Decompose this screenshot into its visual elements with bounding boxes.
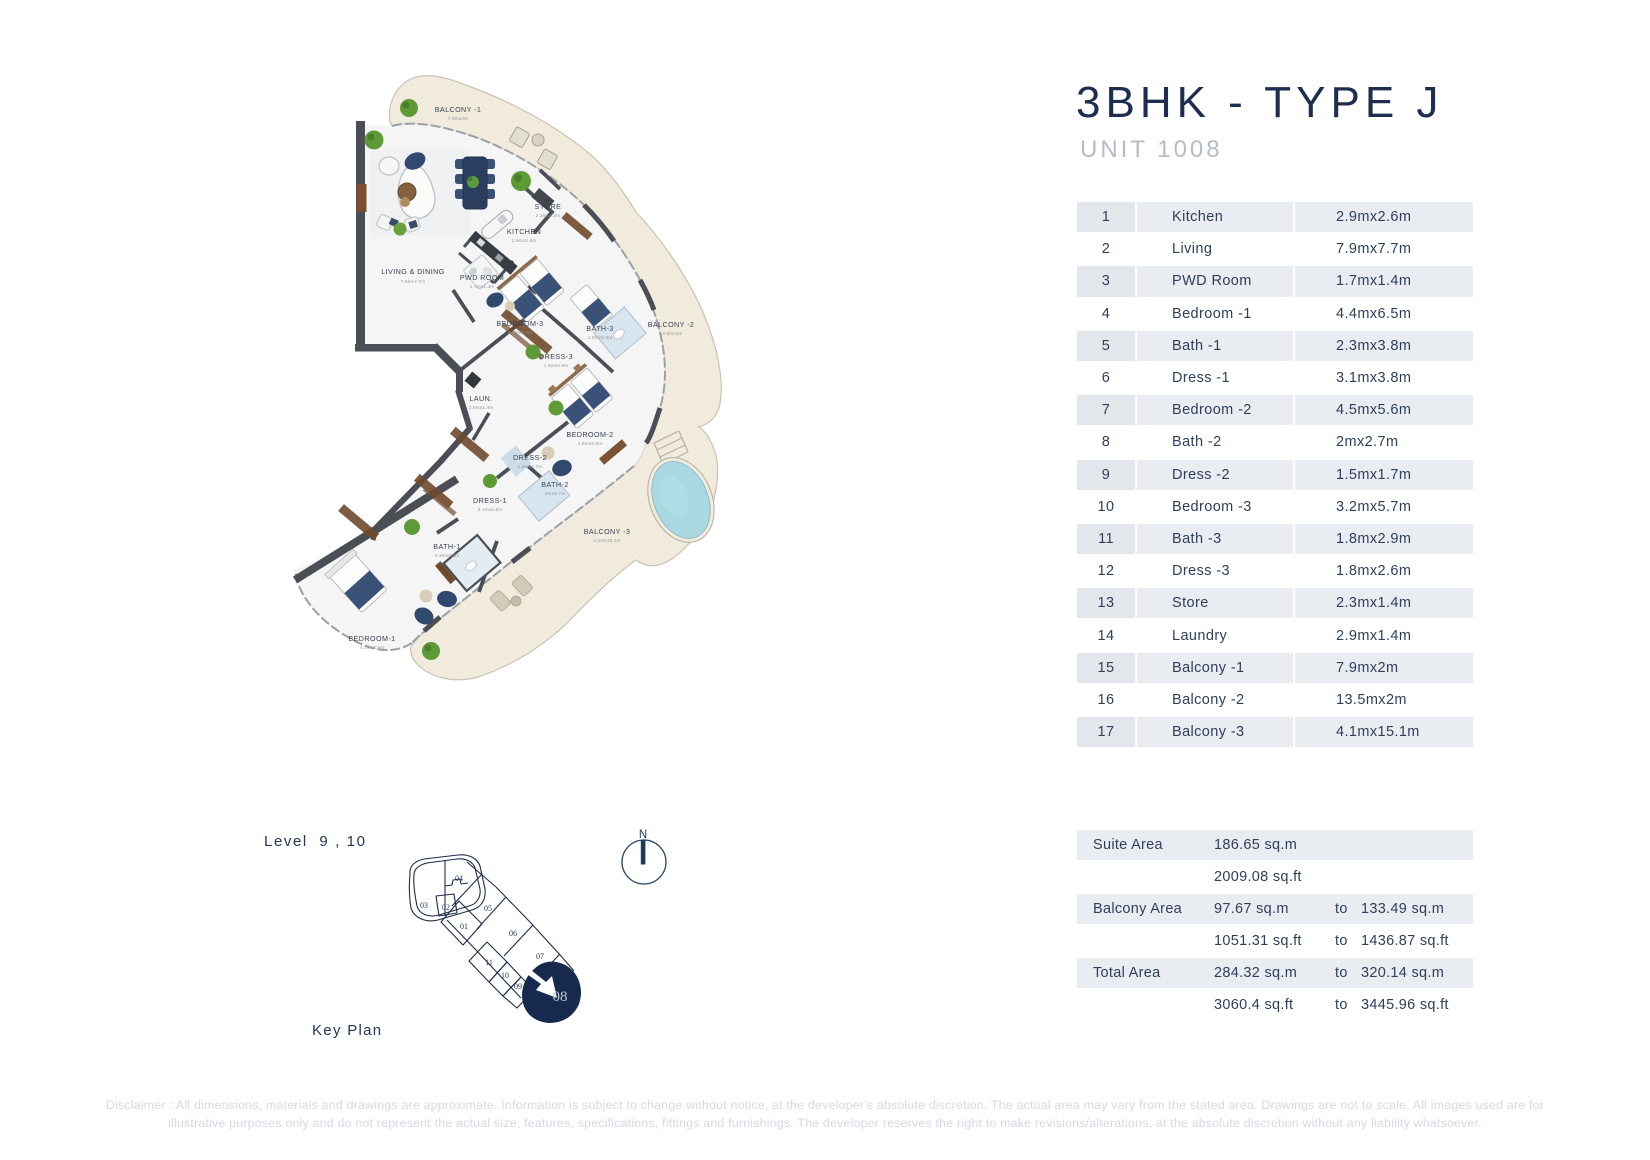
svg-text:4.5mx5.6m: 4.5mx5.6m xyxy=(578,441,603,446)
svg-text:N: N xyxy=(639,829,647,841)
svg-text:BATH-2: BATH-2 xyxy=(541,480,568,489)
svg-text:BALCONY -2: BALCONY -2 xyxy=(648,320,695,329)
svg-text:7.9mx7.7m: 7.9mx7.7m xyxy=(401,279,426,284)
svg-text:DRESS-2: DRESS-2 xyxy=(513,453,547,462)
svg-text:07: 07 xyxy=(536,952,544,961)
svg-text:06: 06 xyxy=(509,929,517,938)
svg-text:4.4mx6.5m: 4.4mx6.5m xyxy=(360,645,385,650)
svg-text:2mx2.7m: 2mx2.7m xyxy=(545,491,565,496)
svg-text:10: 10 xyxy=(501,971,509,980)
svg-text:08: 08 xyxy=(553,989,568,1005)
svg-text:1.7mx1.4m: 1.7mx1.4m xyxy=(470,284,495,289)
svg-text:1.8mx2.9m: 1.8mx2.9m xyxy=(588,335,613,340)
svg-text:BALCONY -1: BALCONY -1 xyxy=(435,105,482,114)
svg-text:04: 04 xyxy=(455,874,463,883)
svg-text:1.8mx2.6m: 1.8mx2.6m xyxy=(544,363,569,368)
svg-text:BEDROOM-2: BEDROOM-2 xyxy=(566,430,613,439)
svg-text:DRESS-3: DRESS-3 xyxy=(539,352,573,361)
svg-text:BALCONY -3: BALCONY -3 xyxy=(584,527,631,536)
svg-text:BEDROOM-1: BEDROOM-1 xyxy=(348,634,395,643)
svg-text:PWD ROOM: PWD ROOM xyxy=(460,273,504,282)
svg-text:13.5mx2m: 13.5mx2m xyxy=(659,331,682,336)
svg-text:01: 01 xyxy=(460,922,468,931)
svg-text:DRESS-1: DRESS-1 xyxy=(473,496,507,505)
svg-text:3.1mx3.8m: 3.1mx3.8m xyxy=(478,507,503,512)
svg-text:7.8mx2m: 7.8mx2m xyxy=(448,116,468,121)
svg-text:LAUN.: LAUN. xyxy=(469,394,492,403)
svg-text:KITCHEN: KITCHEN xyxy=(507,227,541,236)
svg-text:4.1mx15.1m: 4.1mx15.1m xyxy=(593,538,620,543)
svg-text:2.3mx1.4m: 2.3mx1.4m xyxy=(536,213,561,218)
svg-text:BATH-1: BATH-1 xyxy=(433,542,460,551)
svg-text:03: 03 xyxy=(420,901,428,910)
svg-text:11: 11 xyxy=(485,958,493,967)
svg-text:2.3mx3.8m: 2.3mx3.8m xyxy=(435,553,460,558)
svg-text:LIVING & DINING: LIVING & DINING xyxy=(381,267,445,276)
svg-text:1.5mx1.7m: 1.5mx1.7m xyxy=(518,464,543,469)
svg-text:BATH-3: BATH-3 xyxy=(586,324,613,333)
svg-text:3.2mx5.7m: 3.2mx5.7m xyxy=(508,330,533,335)
svg-text:BEDROOM-3: BEDROOM-3 xyxy=(496,319,543,328)
svg-text:2.9mx2.6m: 2.9mx2.6m xyxy=(512,238,537,243)
svg-text:STORE: STORE xyxy=(535,202,562,211)
svg-text:09: 09 xyxy=(514,982,522,991)
svg-text:02: 02 xyxy=(442,903,450,912)
svg-text:2.9mx1.4m: 2.9mx1.4m xyxy=(469,405,494,410)
svg-text:05: 05 xyxy=(484,904,492,913)
